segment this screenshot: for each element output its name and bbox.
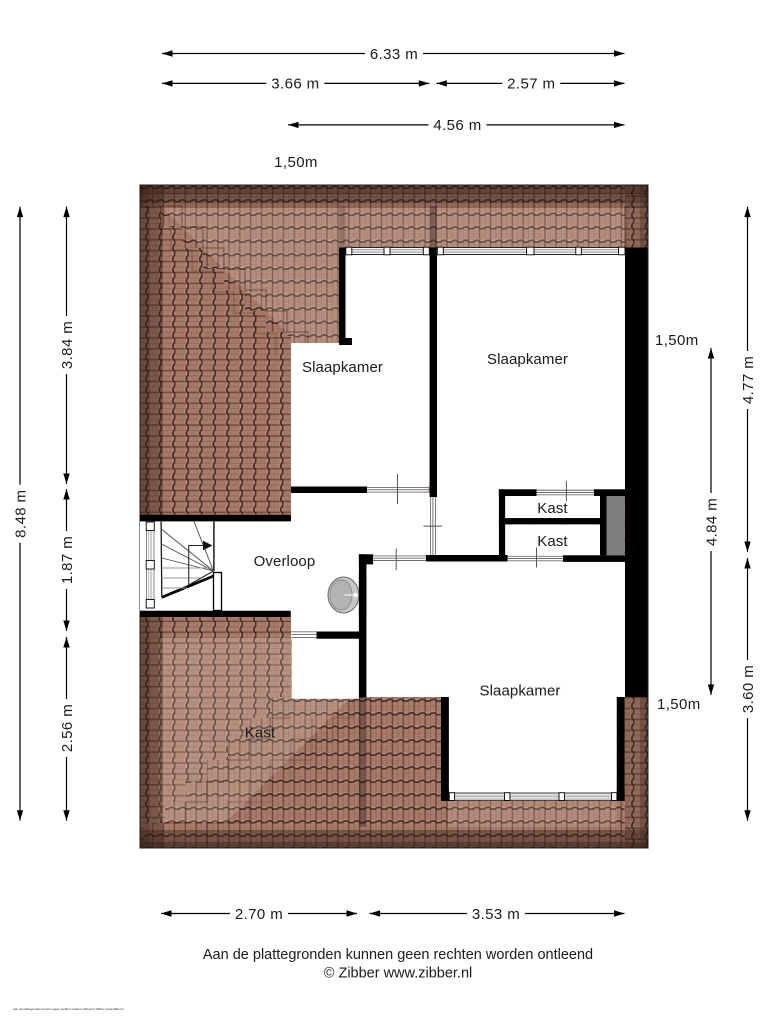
svg-text:2.56 m: 2.56 m [59,704,76,752]
svg-text:3.84 m: 3.84 m [59,321,76,369]
svg-text:6.33 m: 6.33 m [370,46,418,63]
svg-text:© Zibber www.zibber.nl: © Zibber www.zibber.nl [324,966,473,982]
svg-text:2.70 m: 2.70 m [235,906,283,923]
svg-text:Aan de plattegronden kunnen ge: Aan de plattegronden kunnen geen rechten… [203,947,593,963]
svg-text:1,50m: 1,50m [274,154,318,171]
svg-text:3.66 m: 3.66 m [271,76,319,93]
svg-text:Aan de plattegronden kunnen ge: Aan de plattegronden kunnen geen rechten… [13,1007,124,1011]
svg-text:Kast: Kast [537,500,568,517]
svg-text:8.48 m: 8.48 m [12,490,29,538]
svg-text:3.60 m: 3.60 m [740,665,757,713]
svg-text:Kast: Kast [537,533,568,550]
svg-text:4.77 m: 4.77 m [740,356,757,404]
svg-text:1,50m: 1,50m [655,332,699,349]
svg-text:Kast: Kast [245,725,276,742]
svg-text:4.84 m: 4.84 m [703,498,720,546]
svg-text:4.56 m: 4.56 m [433,117,481,134]
svg-text:Slaapkamer: Slaapkamer [479,683,560,700]
svg-text:Slaapkamer: Slaapkamer [487,351,568,368]
svg-text:Overloop: Overloop [254,553,316,570]
svg-text:1,50m: 1,50m [657,696,701,713]
svg-text:1.87 m: 1.87 m [59,536,76,584]
svg-text:Slaapkamer: Slaapkamer [302,359,383,376]
svg-text:2.57 m: 2.57 m [507,76,555,93]
svg-text:3.53 m: 3.53 m [472,906,520,923]
